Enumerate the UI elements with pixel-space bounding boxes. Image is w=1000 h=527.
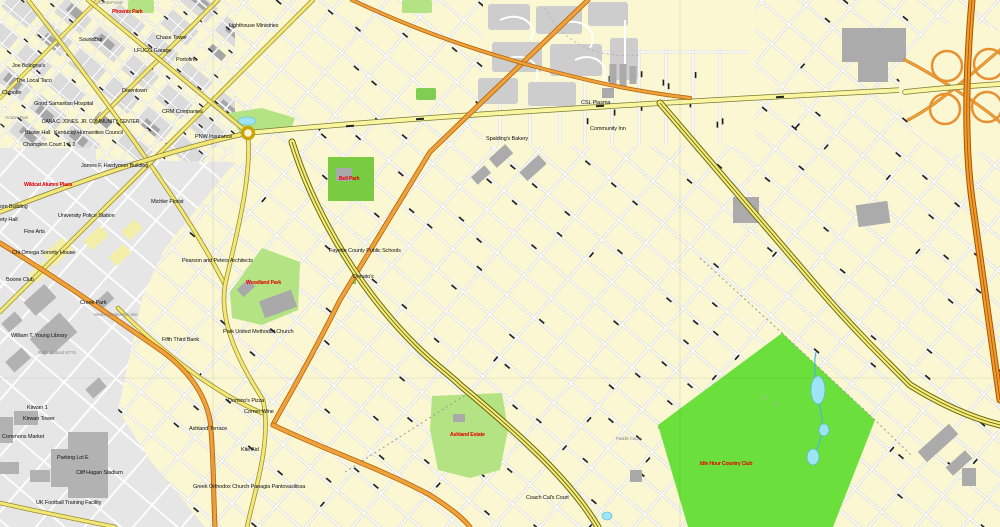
- map-label-mears-construction-site: Mears Construction Site: [94, 312, 137, 318]
- map-label-fine-arts: Fine Arts: [24, 229, 45, 235]
- map-label-coach-cals-court: Coach Cal's Court: [526, 495, 569, 501]
- map-label-bathtub-island-wtyl: Bathtub Island WTYL: [38, 350, 77, 356]
- map-label-the-local-taco: The Local Taco: [16, 78, 52, 84]
- map-label-cliff-hagan-stadium: Cliff Hagan Stadium: [76, 470, 123, 476]
- map-label-pearson-and-peters-architects: Pearson and Peters Architects: [182, 258, 253, 264]
- map-label-james-f-hardymon-building: James F. Hardymon Building: [81, 163, 148, 169]
- map-label-csl-plasma: CSL Plasma: [581, 100, 610, 106]
- map-label-kentucky-humanities-council: Kentucky Humanities Council: [54, 130, 123, 136]
- map-label-commons-market: Commons Market: [2, 434, 44, 440]
- map-label-blazer-hall: Blazer Hall: [25, 130, 50, 136]
- map-label-creek-park: Creek Park: [80, 300, 106, 306]
- map-label-chi-omega-sorority-house: Chi Omega Sorority House: [12, 250, 75, 256]
- map-label-phoenix-park: Phoenix Park: [112, 9, 142, 15]
- map-label-dana-c-jones-community-center: DANA C. JONES, JR. COMMUNITY CENTER: [42, 119, 139, 125]
- map-label-kite-aid: Kite Aid: [241, 447, 259, 453]
- map-label-ety-hall-partial: ety Hall: [0, 217, 17, 223]
- map-label-lfucg-garage: LFUCG Garage: [134, 48, 171, 54]
- map-label-donatos: Donato's: [353, 274, 374, 280]
- map-label-fayette-county-public-schools: Fayette County Public Schools: [329, 248, 401, 254]
- city-map[interactable]: Phoenix Park SoundBar Chase Tower LFUCG …: [0, 0, 1000, 527]
- map-label-parking-lot-e: Parking Lot E: [57, 455, 89, 461]
- map-label-idle-hour-country-club: Idle Hour Country Club: [700, 461, 752, 467]
- map-graphics: [0, 0, 1000, 527]
- map-label-woodland-park: Woodland Park: [246, 280, 281, 286]
- map-label-ashland-estate: Ashland Estate: [450, 432, 485, 438]
- map-label-pnw-insurance: PNW Insurance: [195, 134, 232, 140]
- map-label-bell-park: Bell Park: [339, 176, 359, 182]
- map-label-michler-florist: Michler Florist: [151, 199, 184, 205]
- map-label-wildcat-alumni-plaza: Wildcat Alumni Plaza: [24, 182, 72, 188]
- map-label-dominos-pizza: Domino's Pizza: [228, 398, 264, 404]
- map-label-lighthouse-ministries: Lighthouse Ministries: [229, 23, 278, 29]
- map-label-fifth-third-bank: Fifth Third Bank: [162, 337, 199, 343]
- map-label-gratzer-park: Gratzer Park: [5, 115, 28, 121]
- map-label-university-police-station: University Police Station: [58, 213, 115, 219]
- map-label-joe-bolognas: Joe Bologna's: [12, 63, 45, 69]
- map-label-uk-football-training-facility: UK Football Training Facility: [36, 500, 101, 506]
- map-label-centrepointe: CentrePointe: [99, 0, 123, 6]
- map-label-chipotle: Chipotle: [2, 90, 21, 96]
- map-label-crm-companies: CRM Companies: [162, 109, 203, 115]
- map-label-community-inn: Community Inn: [590, 126, 626, 132]
- map-label-paddle-courts: Paddle Courts: [616, 436, 642, 442]
- map-label-downtown: Downtown: [122, 88, 147, 94]
- map-label-william-t-young-library: William T. Young Library: [11, 333, 67, 339]
- map-label-portofino: Portofino: [176, 57, 197, 63]
- map-label-good-samaritan-hospital: Good Samaritan Hospital: [34, 101, 93, 107]
- map-label-corner-wine: Corner Wine: [244, 409, 274, 415]
- map-label-champion-court: Champion Court 1 & 2: [23, 142, 75, 148]
- map-label-greek-orthodox-church: Greek Orthodox Church Panagia Pantovasil…: [193, 484, 305, 490]
- map-label-spaldings-bakery: Spalding's Bakery: [486, 136, 528, 142]
- map-label-chase-tower: Chase Tower: [156, 35, 187, 41]
- map-label-park-united-methodist-church: Park United Methodist Church: [223, 329, 293, 335]
- map-label-soundbar: SoundBar: [79, 37, 103, 43]
- map-label-kirwan-tower: Kirwan Tower: [23, 416, 55, 422]
- map-label-boone-club: Boone Club: [6, 277, 34, 283]
- map-label-ashland-terrace: Ashland Terrace: [189, 426, 227, 432]
- map-label-om-building-partial: om Building: [0, 204, 28, 210]
- map-label-kirwan-1: Kirwan 1: [27, 405, 48, 411]
